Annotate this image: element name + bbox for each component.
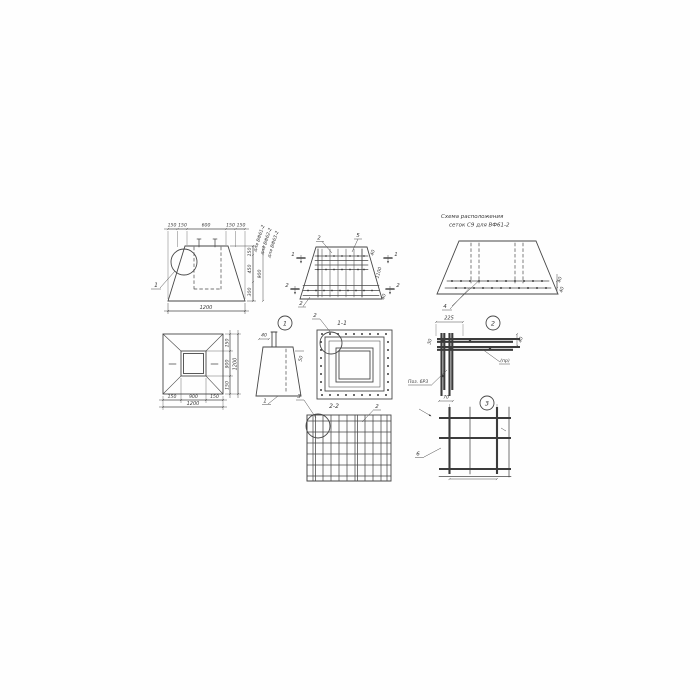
- view-foundation-elevation: 1 150 150 600 150 150 150 450 300 900 дл…: [151, 223, 281, 315]
- scheme-title-line1: Схема расположения: [441, 214, 504, 220]
- elevation-callout-label: 1: [154, 282, 158, 289]
- leader-label: 1: [263, 399, 267, 405]
- view-mesh-scheme: Схема расположения сеток С9 для ВФ61-2 4…: [437, 214, 566, 310]
- leader-label: 6: [416, 452, 420, 458]
- dim: 150: [178, 223, 187, 229]
- dim: 900: [189, 394, 198, 400]
- dim: 150: [225, 381, 231, 390]
- leader-label: 2: [313, 313, 317, 319]
- mesh-dots-top: [317, 255, 365, 270]
- dim: 50: [297, 355, 304, 362]
- dim: 40: [261, 333, 267, 339]
- dim: 150: [168, 223, 177, 229]
- section-mark: 1: [394, 252, 398, 258]
- drawing-sheet: 1 150 150 600 150 150 150 450 300 900 дл…: [0, 0, 700, 700]
- section-title: 2-2: [329, 403, 339, 410]
- view-plan: 150 900 150 1200 150 900 150 1200: [159, 330, 241, 410]
- dim: 150: [225, 339, 231, 348]
- scheme-title-line2: сеток С9 для ВФ61-2: [449, 223, 510, 229]
- detail-number: 1: [283, 320, 287, 328]
- section-title: 1-1: [337, 320, 347, 327]
- section11-rebar-dots: [320, 333, 389, 396]
- dim: 225: [444, 316, 454, 322]
- dim: 300: [247, 288, 253, 297]
- leader-label: 2: [375, 404, 379, 410]
- dim: 900: [225, 360, 231, 369]
- dim: 1200: [200, 305, 213, 311]
- leader-label: (пр): [500, 358, 510, 364]
- leader-label: 4: [443, 304, 447, 310]
- leader-label: 2: [317, 236, 321, 242]
- section-mark: 1: [291, 252, 295, 258]
- leader-label: 2: [299, 301, 303, 307]
- drawing-canvas: 1 150 150 600 150 150 150 450 300 900 дл…: [0, 0, 700, 700]
- view-reinforcement-elevation: 1 1 2 2 2 5 2 40 1100 40: [285, 233, 400, 307]
- dim: 40: [369, 249, 376, 256]
- dim: 1200: [187, 401, 200, 407]
- view-section-1-1: 1-1 2: [312, 313, 392, 399]
- section-mark: 2: [396, 283, 400, 289]
- dim: 450: [247, 265, 253, 274]
- dim: 1200: [233, 358, 239, 371]
- dim: 40: [558, 286, 565, 293]
- view-detail-2: 2 225 40 30 (пр) Поз. 6Р3: [408, 316, 525, 397]
- dim: 150: [210, 394, 219, 400]
- dim: 70: [443, 395, 449, 401]
- section-mark: 2: [285, 283, 289, 289]
- leader-label: 5: [356, 233, 360, 239]
- detail-number: 3: [485, 400, 489, 408]
- dim: 30: [426, 338, 433, 345]
- dim: 40: [556, 276, 563, 283]
- leader-label: 3: [297, 394, 301, 400]
- dim: 150: [226, 223, 235, 229]
- detail-number: 2: [491, 320, 495, 328]
- dim: 40: [517, 336, 524, 343]
- leader-label: Поз. 6Р3: [408, 379, 428, 385]
- dim: 40: [380, 293, 387, 300]
- dim: 600: [202, 223, 211, 229]
- view-section-2-2: 3 2-2 2: [296, 394, 391, 481]
- dim: 900: [257, 270, 263, 279]
- view-detail-3: 3 70 6: [415, 395, 511, 480]
- dim: 150: [168, 394, 177, 400]
- dim: 1100: [375, 266, 384, 279]
- dim: 150: [237, 223, 246, 229]
- view-detail-1: 1 40 50 1: [256, 316, 305, 405]
- dim: 150: [247, 248, 253, 257]
